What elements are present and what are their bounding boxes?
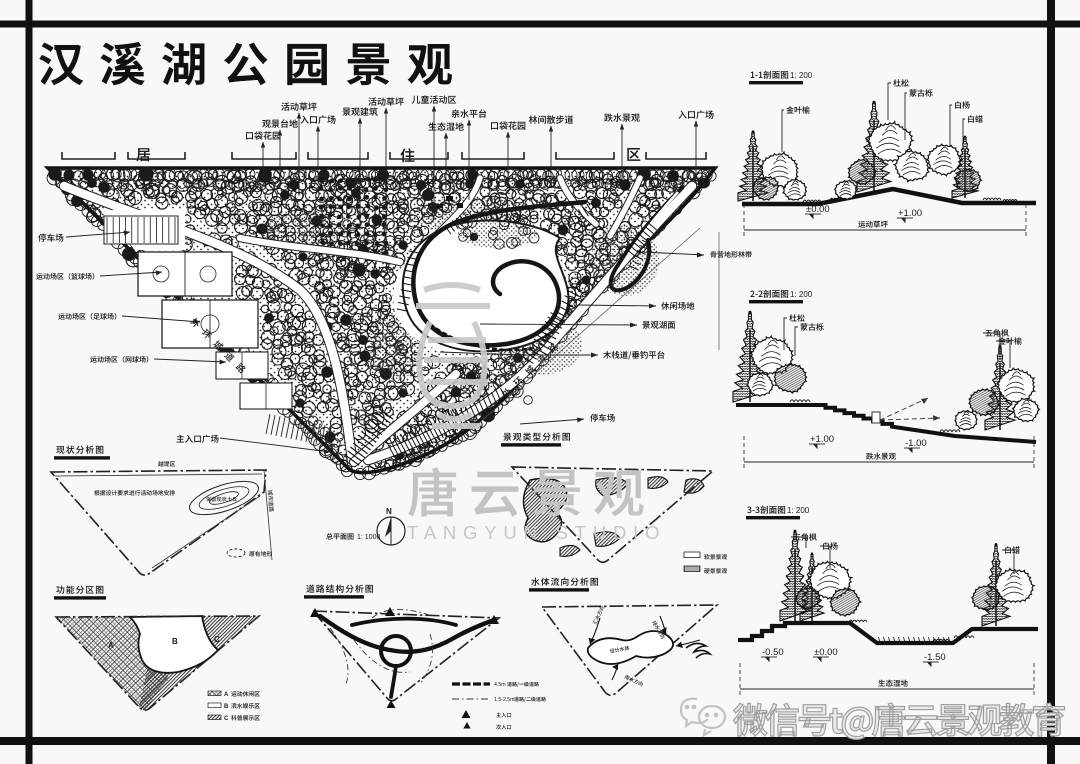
svg-text:+1.00: +1.00 <box>810 434 834 445</box>
svg-text:TANGYUN STUDIO: TANGYUN STUDIO <box>407 522 666 543</box>
svg-text:±0.00: ±0.00 <box>806 204 830 215</box>
svg-text:A: A <box>224 692 229 698</box>
svg-text:-1.50: -1.50 <box>924 652 946 663</box>
svg-text:4.5m: 4.5m <box>494 682 506 688</box>
svg-text:B: B <box>224 704 229 710</box>
svg-text:-1.00: -1.00 <box>905 438 927 449</box>
svg-text:1: 200: 1: 200 <box>790 290 813 299</box>
svg-text:-0.50: -0.50 <box>762 647 784 658</box>
svg-text:C: C <box>224 716 229 722</box>
svg-text:1: 200: 1: 200 <box>787 506 810 515</box>
svg-text:1.5-2.5m: 1.5-2.5m <box>494 697 514 703</box>
svg-text:±0.00: ±0.00 <box>814 647 838 658</box>
svg-text:A: A <box>108 641 114 650</box>
svg-text:B: B <box>172 637 178 646</box>
svg-text:+1.00: +1.00 <box>898 208 922 219</box>
svg-text:C: C <box>214 635 220 644</box>
svg-text:1: 200: 1: 200 <box>790 71 813 80</box>
svg-text:N: N <box>386 507 392 516</box>
svg-text:1: 1000: 1: 1000 <box>357 534 380 541</box>
